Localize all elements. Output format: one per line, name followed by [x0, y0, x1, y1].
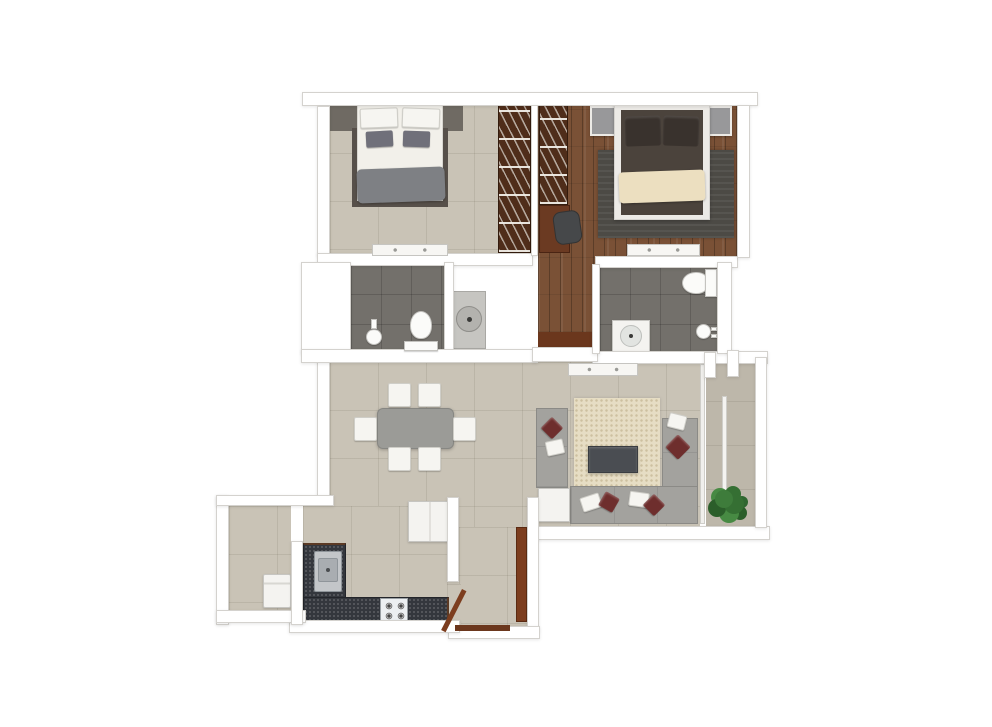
- wall-utility-top: [216, 495, 334, 506]
- wall-bedroom-left: [317, 106, 330, 256]
- balcony-potted-plant: [715, 490, 733, 508]
- bedroom-blanket: [356, 166, 445, 203]
- master-bathroom-basin-drain: [629, 334, 633, 338]
- bedroom-wardrobe: [498, 105, 531, 253]
- room-bathroom-floor: [351, 264, 444, 350]
- living-coffee-table: [588, 446, 638, 473]
- bathroom-toilet-tank: [404, 341, 438, 351]
- master-cream-throw: [618, 170, 705, 204]
- wall-passage-bottom: [532, 347, 598, 362]
- bedroom-pillow-left: [360, 107, 399, 128]
- bathroom-shower-head: [366, 329, 382, 345]
- living-area-rug: [574, 398, 660, 488]
- wall-top: [302, 92, 758, 106]
- wall-balcony-right: [755, 357, 767, 528]
- room-passage-floor: [538, 256, 595, 332]
- floor-plan-canvas: [0, 0, 992, 727]
- dining-chair-bottom-2: [418, 447, 441, 471]
- kitchen-sink-drain: [326, 568, 330, 572]
- master-pillow-right: [662, 115, 699, 146]
- wall-master-bathroom-left: [592, 264, 600, 354]
- wall-balcony-stub-1: [704, 352, 716, 378]
- dining-chair-top-2: [418, 383, 441, 407]
- living-corner-table: [538, 488, 570, 522]
- foyer-door-frame: [516, 527, 527, 622]
- wall-utility-left: [216, 495, 229, 625]
- master-desk-chair: [552, 209, 583, 245]
- wall-kitchen-foyer-divider: [447, 497, 459, 582]
- wall-kitchen-bottom: [289, 620, 460, 633]
- kitchen-gas-stove: [380, 598, 408, 622]
- wall-master-right: [737, 105, 750, 258]
- wall-between-bedrooms: [531, 105, 538, 256]
- dining-chair-bottom-1: [388, 447, 411, 471]
- master-nightstand-left: [590, 106, 617, 136]
- kitchen-refrigerator: [408, 501, 452, 542]
- dining-chair-top-1: [388, 383, 411, 407]
- wall-balcony-stub-2: [727, 350, 739, 377]
- balcony-sliding-door-track: [700, 364, 705, 524]
- living-tv-console: [568, 363, 638, 376]
- dining-chair-left: [354, 417, 377, 441]
- bedroom-cushion-left: [366, 130, 394, 147]
- bathroom-basin-drain: [467, 317, 472, 322]
- wall-foyer-right: [527, 497, 539, 632]
- wall-utility-right: [291, 541, 303, 625]
- wall-dining-left: [317, 354, 330, 497]
- master-bathroom-shower-mixer: [696, 324, 711, 339]
- passage-threshold: [538, 332, 595, 348]
- wall-living-bottom: [529, 526, 770, 540]
- bathroom-shower-stem: [371, 319, 377, 329]
- master-wall-console: [627, 244, 700, 256]
- foyer-threshold: [455, 625, 510, 631]
- master-wardrobe: [539, 105, 568, 205]
- dining-table: [377, 408, 454, 449]
- bedroom-cushion-right: [403, 131, 431, 148]
- utility-washing-machine: [263, 574, 291, 608]
- wall-bath-row-bottom-left: [301, 349, 538, 363]
- dining-chair-right: [453, 417, 476, 441]
- bathroom-toilet-bowl: [410, 311, 432, 339]
- bedroom-wall-console: [372, 244, 448, 256]
- master-pillow-left: [624, 115, 661, 146]
- wall-master-bathroom-right: [717, 262, 732, 354]
- bedroom-pillow-right: [402, 107, 441, 128]
- master-bathroom-toilet-tank: [705, 269, 717, 297]
- duct-shaft: [301, 262, 351, 354]
- wall-bathroom-right: [444, 262, 454, 352]
